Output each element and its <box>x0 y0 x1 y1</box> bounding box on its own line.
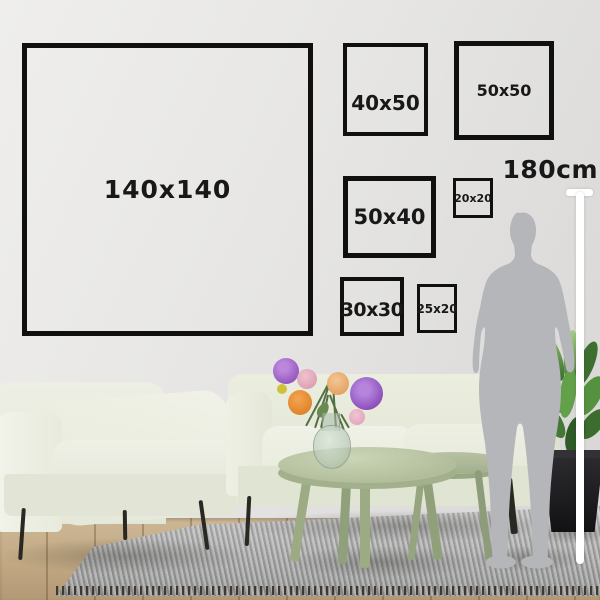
frame-140x140: 140x140 <box>22 43 313 336</box>
glass-vase-body <box>313 425 351 469</box>
frame-label: 20x20 <box>454 192 492 205</box>
peach-flower <box>327 372 349 395</box>
frame-50x40: 50x40 <box>343 176 436 258</box>
coffee-table-large-top <box>278 447 456 483</box>
frame-label: 140x140 <box>104 175 232 204</box>
pink-flower <box>349 409 365 425</box>
frame-label: 40x50 <box>351 91 420 115</box>
height-ruler <box>576 192 584 564</box>
height-marker-label: 180cm <box>498 155 598 184</box>
frame-30x30: 30x30 <box>340 277 404 336</box>
rug-fringe <box>56 586 600 595</box>
table-shadow <box>284 546 479 578</box>
yellow-bud <box>277 384 287 394</box>
frame-label: 30x30 <box>341 299 404 321</box>
purple-flower <box>273 358 299 384</box>
coffee-table-large-leg <box>360 482 370 568</box>
armchair-leg <box>123 510 128 540</box>
frame-size-guide-diagram: 180cm 140x140 40x50 50x50 50x40 20x20 30… <box>0 0 600 600</box>
frame-label: 50x40 <box>354 205 426 229</box>
frame-25x20: 25x20 <box>417 284 457 333</box>
frame-40x50: 40x50 <box>343 43 428 136</box>
pink-flower <box>297 369 317 389</box>
person-silhouette <box>469 211 577 569</box>
armchair-shadow <box>0 538 250 574</box>
orange-flower <box>288 390 312 415</box>
frame-label: 25x20 <box>416 302 457 316</box>
frame-label: 50x50 <box>477 81 532 100</box>
purple-flower <box>350 377 383 410</box>
frame-50x50: 50x50 <box>454 41 554 140</box>
